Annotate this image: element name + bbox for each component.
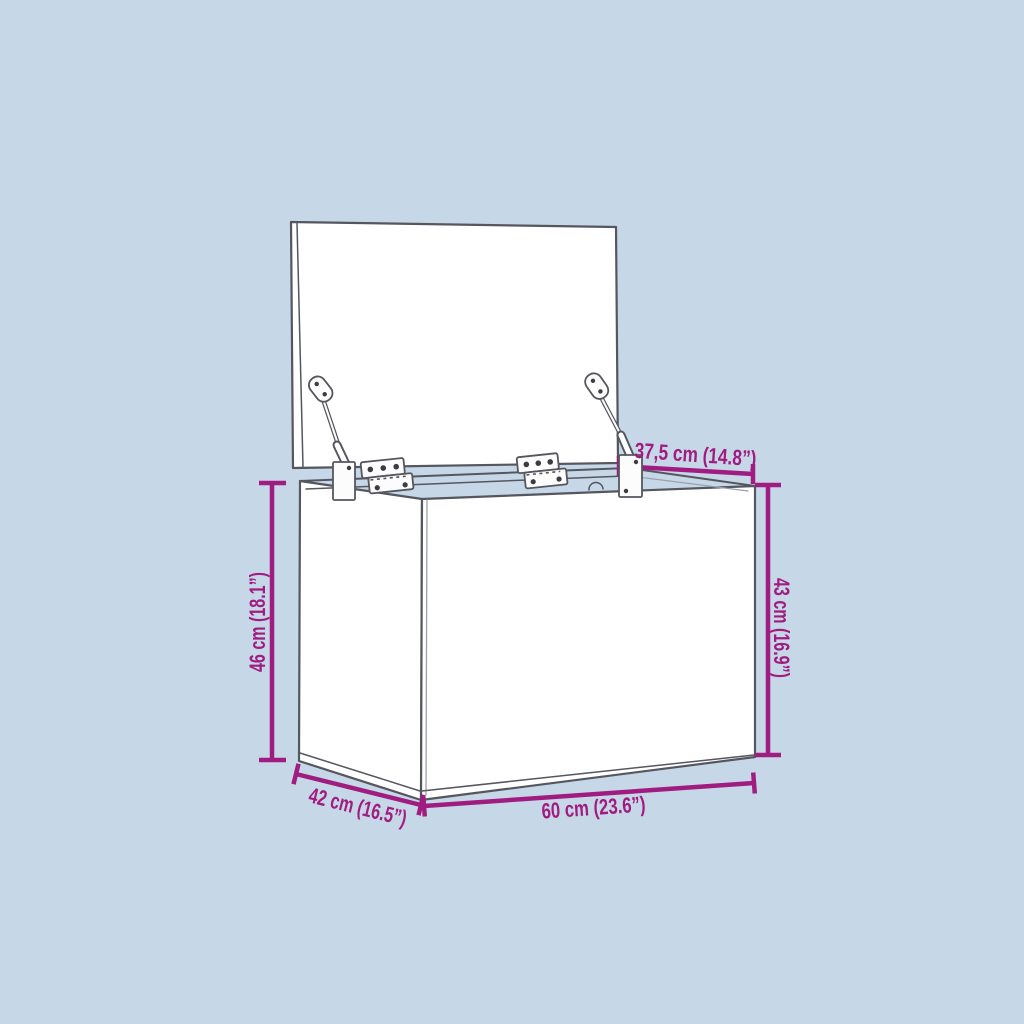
screw-dot <box>624 489 628 493</box>
screw-dot <box>347 466 351 470</box>
strut-mount <box>333 462 355 500</box>
box-body <box>299 468 755 800</box>
dimension-tick <box>753 773 755 794</box>
lid <box>291 222 618 468</box>
box-front-face <box>421 486 755 800</box>
box-left-face <box>299 481 422 800</box>
dimension-diagram-canvas: 37,5 cm (14.8”) 46 cm (18.1”) 43 cm (16.… <box>0 0 1024 1024</box>
lid-panel <box>291 222 618 468</box>
dimension-label-right-height: 43 cm (16.9”) <box>769 578 794 678</box>
dimension-label-left-height: 46 cm (18.1”) <box>245 572 270 672</box>
dimension-tick <box>423 796 425 817</box>
